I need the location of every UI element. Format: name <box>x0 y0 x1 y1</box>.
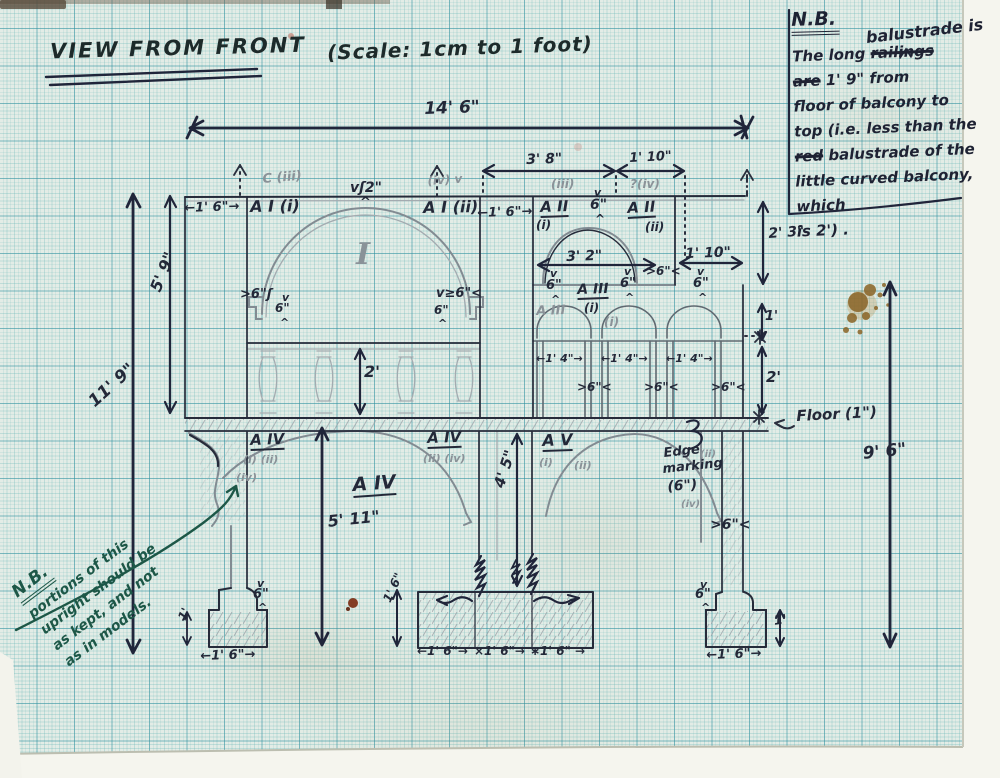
note-top-right: N.B. balustrade is The long railingsare … <box>791 3 1000 243</box>
dim-6in-pier1: >6"< <box>577 381 612 393</box>
label-A-IV-center: A IV <box>352 473 397 498</box>
dimension-arrows <box>165 165 784 646</box>
dim-1ft-right: 1' <box>765 310 778 323</box>
floor-label: Floor (1") <box>796 405 877 424</box>
title-underline <box>46 69 261 85</box>
dim-2ft-right: 2' <box>766 370 781 385</box>
mark-caret-balcony: ^ <box>595 213 605 225</box>
base-right-1ft6in: ←1' 6"→ <box>706 647 762 662</box>
label-C-iii: C (iii) <box>262 170 302 186</box>
dim-1ft-4in-3: ←1' 4"→ <box>666 353 713 364</box>
dim-2ft-3in: 2' 3" <box>768 224 805 240</box>
dim-1ft-4in-2: ←1' 4"→ <box>601 353 648 364</box>
dim-9ft6-arrow <box>884 282 896 647</box>
dim-6in-balcony: 6" <box>590 198 607 212</box>
plinth-1ft6in-2: ×1' 6"→ <box>474 645 525 657</box>
arch2-6in: 6" <box>620 277 636 290</box>
arch2-caret: ^ <box>625 292 634 303</box>
graph-paper-scan: VIEW FROM FRONT (Scale: 1cm to 1 foot) N… <box>0 0 1000 778</box>
spring-right-6in: v≥6"< <box>436 287 482 300</box>
dim-6in-right-pier: >6"< <box>710 518 751 532</box>
spring-left-6in: >6"ʃ <box>240 288 272 301</box>
dim-1ft-6in-left: ←1' 6"→ <box>184 200 240 215</box>
label-A-II-i-sub: (i) <box>536 219 551 231</box>
label-A-IV-right-sub: (ii) (iv) <box>423 453 465 464</box>
note-segment: 1' 9" from <box>820 68 910 90</box>
label-A-V: A V <box>542 432 573 452</box>
dim-6in-pier3: >6"< <box>711 381 746 393</box>
label-A-III-p-sub: (i) <box>604 316 619 328</box>
note-segment: balustrade of the <box>823 140 975 165</box>
note-lines: The long railingsare 1' 9" fromfloor of … <box>792 37 1000 243</box>
label-bay-I: I <box>356 240 370 270</box>
spring-right-caret: ^ <box>438 318 447 329</box>
label-A-IV-left-sub2: (iv) <box>236 472 257 483</box>
label-A-III-sub: (i) <box>584 302 599 314</box>
label-A-IV-right: A IV <box>427 430 462 449</box>
label-A-II-ii-sub: (ii) <box>645 221 664 233</box>
note-segment: top (i.e. less than the <box>794 115 977 141</box>
label-A-I-ii: A I (ii) <box>423 199 478 216</box>
dim-3ft-2in: 3' 2" <box>566 249 602 264</box>
note-segment: floor of balcony to <box>793 91 949 116</box>
dim-6in-gap: >6"< <box>646 265 681 277</box>
spring-left-6in-b: 6" <box>275 302 290 314</box>
dim-1ft-4in-1: ←1' 4"→ <box>536 353 583 364</box>
dim-2ft-balustrade: 2' <box>364 364 380 380</box>
dim-1ft-6in-mid: ←1' 6"→ <box>477 205 533 220</box>
label-A-I-i: A I (i) <box>250 198 300 215</box>
base-left-6in: 6" <box>253 588 269 601</box>
dim-1ft-10in-low: 1' 10" <box>685 245 731 261</box>
dim-14ft6-arrow <box>187 116 753 138</box>
label-iii-above: (iii) <box>551 178 574 190</box>
page-title: VIEW FROM FRONT (Scale: 1cm to 1 foot) <box>50 36 593 60</box>
dim-14ft-6in: 14' 6" <box>424 99 480 118</box>
edge-marking-3: (6") <box>667 478 698 494</box>
label-A-IV-left-sub: (i) (ii) <box>243 454 278 465</box>
plinth-1ft6in-3: ∗1' 6" → <box>530 645 585 657</box>
label-A-III-ink: A III <box>577 282 609 300</box>
label-iv-above: ?(iv) <box>630 178 660 190</box>
arch3-6in: 6" <box>693 277 709 290</box>
dim-6in-pier2: >6"< <box>644 381 679 393</box>
edge-marking-sub2: (iv) <box>681 500 700 510</box>
dim-1ft-10in-top: 1' 10" <box>629 150 672 165</box>
spring-right-6in-b: 6" <box>434 304 449 316</box>
base-left-caret: ^ <box>258 602 267 613</box>
arch1-caret: ^ <box>551 294 560 305</box>
scale-note: (Scale: 1cm to 1 foot) <box>327 31 594 64</box>
label-A-V-sub2: (ii) <box>574 460 592 471</box>
dim-2in-apex: vʃ2" <box>350 181 382 195</box>
base-right-1ft: 1' <box>773 613 788 628</box>
arch3-caret: ^ <box>698 292 707 303</box>
edge-marking-1: Edge <box>663 443 700 460</box>
label-A-IV-left: A IV <box>250 432 285 451</box>
base-left-1ft6in: ←1' 6"→ <box>200 648 256 663</box>
label-A-V-sub: (i) <box>539 457 553 468</box>
note-segment: are <box>792 71 820 90</box>
label-A-II-ii: A II <box>627 200 656 219</box>
plinth-1ft6in-1: ←1' 6"→ <box>417 645 468 657</box>
note-segment: railings <box>870 42 934 63</box>
spring-left-caret: ^ <box>280 317 289 328</box>
base-right-6in: 6" <box>695 588 711 601</box>
note-segment: red <box>794 146 823 165</box>
note-line: little curved balcony, which <box>795 160 1000 219</box>
label-iv-upper: (iv) v <box>427 173 463 187</box>
label-A-III-pencil: A III <box>536 304 566 318</box>
rust-spot <box>348 598 358 608</box>
dim-3ft-8in: 3' 8" <box>526 152 562 167</box>
note-heading: N.B. <box>791 8 840 36</box>
dim-9ft-6in: 9' 6" <box>862 441 907 462</box>
note-segment: The long <box>792 44 871 65</box>
apex-caret: ^ <box>360 196 371 209</box>
arch1-6in: 6" <box>546 279 562 292</box>
note-segment: little curved balcony, which <box>795 165 974 216</box>
label-A-II-i: A II <box>540 199 569 218</box>
title-text: VIEW FROM FRONT <box>50 33 306 64</box>
base-right-caret: ^ <box>701 602 710 613</box>
dim-5ft11-arrow <box>316 428 328 645</box>
